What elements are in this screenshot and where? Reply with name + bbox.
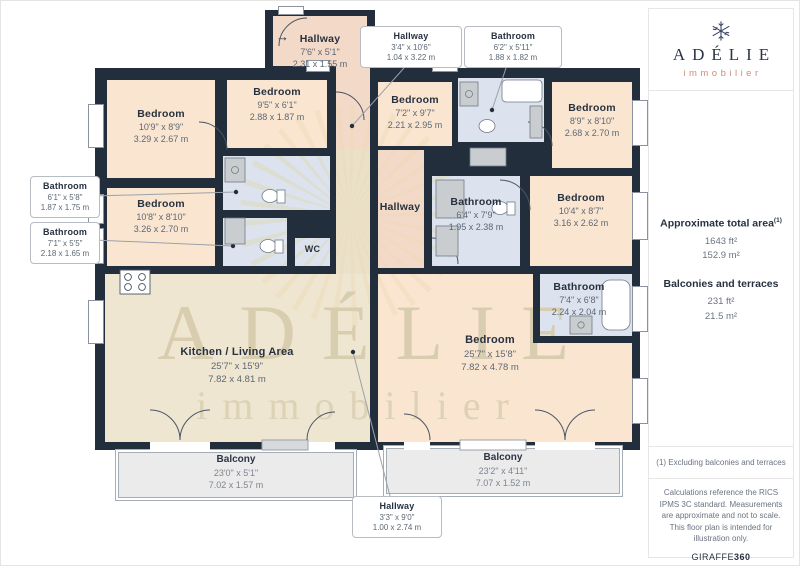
room-name: Hallway bbox=[270, 33, 370, 46]
room-dimensions-metric: 1.04 x 3.22 m bbox=[363, 53, 459, 63]
room-label-bedroom-top-middle: Bedroom 9'5" x 6'1" 2.88 x 1.87 m bbox=[227, 86, 327, 124]
room-dimensions-imperial: 7'4" x 6'8" bbox=[533, 295, 625, 306]
room-label-bedroom-right: Bedroom 10'4" x 8'7" 3.16 x 2.62 m bbox=[530, 192, 632, 230]
room-label-wc: WC bbox=[295, 244, 330, 255]
room-label-kitchen-living: Kitchen / Living Area 25'7" x 15'9" 7.82… bbox=[117, 346, 357, 386]
callout-hallway-top: Hallway 3'4" x 10'6" 1.04 x 3.22 m bbox=[360, 26, 462, 68]
callout-bathroom-left-1: Bathroom 6'1" x 5'8" 1.87 x 1.75 m bbox=[30, 176, 100, 218]
room-dimensions-imperial: 25'7" x 15'8" bbox=[390, 349, 590, 361]
room-dimensions-imperial: 6'2" x 5'11" bbox=[467, 43, 559, 53]
room-dimensions-imperial: 7'6" x 5'1" bbox=[270, 47, 370, 58]
footnote-marker: (1) bbox=[774, 217, 782, 224]
room-label-balcony-left: Balcony 23'0" x 5'1" 7.02 x 1.57 m bbox=[116, 454, 356, 491]
room-name: Hallway bbox=[372, 201, 428, 214]
room-name: Bathroom bbox=[467, 31, 559, 43]
room-name: WC bbox=[295, 244, 330, 255]
room-dimensions-imperial: 6'1" x 5'8" bbox=[33, 193, 97, 203]
room-dimensions-imperial: 3'3" x 9'0" bbox=[355, 513, 439, 523]
room-dimensions-imperial: 9'5" x 6'1" bbox=[227, 100, 327, 111]
callout-bathroom-top: Bathroom 6'2" x 5'11" 1.88 x 1.82 m bbox=[464, 26, 562, 68]
disclaimer-section: Calculations reference the RICS IPMS 3C … bbox=[649, 479, 793, 557]
room-name: Balcony bbox=[384, 452, 622, 465]
room-label-bedroom-middle-left: Bedroom 10'8" x 8'10" 3.26 x 2.70 m bbox=[107, 198, 215, 236]
sidebar: ADÉLIE immobilier Approximate total area… bbox=[648, 8, 794, 558]
room-label-bedroom-top-center: Bedroom 7'2" x 9'7" 2.21 x 2.95 m bbox=[376, 94, 454, 132]
room-name: Bathroom bbox=[432, 196, 520, 209]
room-label-hallway-top: Hallway 7'6" x 5'1" 2.31 x 1.55 m bbox=[270, 33, 370, 71]
room-label-bedroom-top-right: Bedroom 8'9" x 8'10" 2.68 x 2.70 m bbox=[548, 102, 636, 140]
room-label-bathroom-center: Bathroom 6'4" x 7'9" 1.95 x 2.38 m bbox=[432, 196, 520, 234]
room-dimensions-imperial: 10'9" x 8'9" bbox=[107, 122, 215, 133]
room-dimensions-metric: 2.68 x 2.70 m bbox=[548, 128, 636, 139]
balconies-label: Balconies and terraces bbox=[649, 278, 793, 290]
total-area-section: Approximate total area(1) 1643 ft² 152.9… bbox=[649, 91, 793, 447]
room-name: Kitchen / Living Area bbox=[117, 346, 357, 360]
room-name: Bedroom bbox=[390, 334, 590, 348]
room-name: Bathroom bbox=[533, 281, 625, 294]
room-label-bedroom-bottom-right: Bedroom 25'7" x 15'8" 7.82 x 4.78 m bbox=[390, 334, 590, 374]
room-dimensions-metric: 1.88 x 1.82 m bbox=[467, 53, 559, 63]
room-dimensions-imperial: 10'8" x 8'10" bbox=[107, 212, 215, 223]
snowflake-icon bbox=[710, 20, 732, 42]
giraffe360-credit: GIRAFFE360 bbox=[659, 551, 783, 564]
room-dimensions-imperial: 25'7" x 15'9" bbox=[117, 361, 357, 373]
credit-name: GIRAFFE bbox=[691, 552, 734, 562]
room-label-balcony-right: Balcony 23'2" x 4'11" 7.07 x 1.52 m bbox=[384, 452, 622, 489]
callout-bathroom-left-2: Bathroom 7'1" x 5'5" 2.18 x 1.65 m bbox=[30, 222, 100, 264]
room-dimensions-imperial: 10'4" x 8'7" bbox=[530, 206, 632, 217]
room-name: Balcony bbox=[116, 454, 356, 467]
room-dimensions-metric: 1.95 x 2.38 m bbox=[432, 222, 520, 233]
balconies-ft: 231 ft² bbox=[649, 295, 793, 310]
room-label-hallway-center: Hallway bbox=[372, 201, 428, 214]
room-name: Bedroom bbox=[227, 86, 327, 99]
disclaimer: Calculations reference the RICS IPMS 3C … bbox=[659, 487, 783, 545]
room-name: Hallway bbox=[363, 31, 459, 43]
room-name: Bedroom bbox=[530, 192, 632, 205]
balconies-m: 21.5 m² bbox=[649, 310, 793, 325]
room-dimensions-metric: 1.87 x 1.75 m bbox=[33, 203, 97, 213]
room-dimensions-metric: 2.21 x 2.95 m bbox=[376, 120, 454, 131]
brand-logo: ADÉLIE immobilier bbox=[649, 9, 793, 91]
brand-name: ADÉLIE bbox=[673, 45, 776, 65]
total-area-label: Approximate total area(1) bbox=[649, 217, 793, 230]
room-dimensions-imperial: 23'2" x 4'11" bbox=[384, 466, 622, 477]
room-dimensions-metric: 7.82 x 4.78 m bbox=[390, 362, 590, 374]
footnote: (1) Excluding balconies and terraces bbox=[649, 447, 793, 479]
room-dimensions-imperial: 6'4" x 7'9" bbox=[432, 210, 520, 221]
credit-suffix: 360 bbox=[734, 552, 751, 562]
room-name: Bedroom bbox=[107, 108, 215, 121]
sliding-doors bbox=[262, 440, 526, 450]
total-area-ft: 1643 ft² bbox=[649, 235, 793, 250]
room-dimensions-imperial: 7'2" x 9'7" bbox=[376, 108, 454, 119]
room-dimensions-metric: 7.02 x 1.57 m bbox=[116, 480, 356, 491]
room-dimensions-metric: 3.29 x 2.67 m bbox=[107, 134, 215, 145]
room-name: Bathroom bbox=[33, 227, 97, 239]
door-openings bbox=[150, 442, 595, 450]
room-name: Bathroom bbox=[33, 181, 97, 193]
total-area-m: 152.9 m² bbox=[649, 249, 793, 264]
room-dimensions-imperial: 8'9" x 8'10" bbox=[548, 116, 636, 127]
room-dimensions-metric: 2.88 x 1.87 m bbox=[227, 112, 327, 123]
room-name: Bedroom bbox=[376, 94, 454, 107]
room-dimensions-metric: 2.31 x 1.55 m bbox=[270, 59, 370, 70]
room-dimensions-metric: 2.24 x 2.04 m bbox=[533, 307, 625, 318]
room-name: Bedroom bbox=[548, 102, 636, 115]
room-dimensions-imperial: 7'1" x 5'5" bbox=[33, 239, 97, 249]
room-dimensions-metric: 2.18 x 1.65 m bbox=[33, 249, 97, 259]
stove-icon bbox=[120, 270, 150, 294]
room-dimensions-metric: 7.07 x 1.52 m bbox=[384, 478, 622, 489]
room-name: Hallway bbox=[355, 501, 439, 513]
room-dimensions-imperial: 23'0" x 5'1" bbox=[116, 468, 356, 479]
room-name: Bedroom bbox=[107, 198, 215, 211]
room-label-bedroom-top-left: Bedroom 10'9" x 8'9" 3.29 x 2.67 m bbox=[107, 108, 215, 146]
total-area-label-text: Approximate total area bbox=[660, 218, 774, 230]
footnote-text: (1) Excluding balconies and terraces bbox=[656, 458, 785, 467]
callout-hallway-bottom: Hallway 3'3" x 9'0" 1.00 x 2.74 m bbox=[352, 496, 442, 538]
room-dimensions-metric: 3.16 x 2.62 m bbox=[530, 218, 632, 229]
room-dimensions-metric: 3.26 x 2.70 m bbox=[107, 224, 215, 235]
room-dimensions-metric: 1.00 x 2.74 m bbox=[355, 523, 439, 533]
room-label-bathroom-right: Bathroom 7'4" x 6'8" 2.24 x 2.04 m bbox=[533, 281, 625, 319]
room-dimensions-metric: 7.82 x 4.81 m bbox=[117, 374, 357, 386]
floorplan-page: ADÉLIE immobilier bbox=[0, 0, 800, 566]
brand-tagline: immobilier bbox=[683, 68, 761, 79]
room-dimensions-imperial: 3'4" x 10'6" bbox=[363, 43, 459, 53]
